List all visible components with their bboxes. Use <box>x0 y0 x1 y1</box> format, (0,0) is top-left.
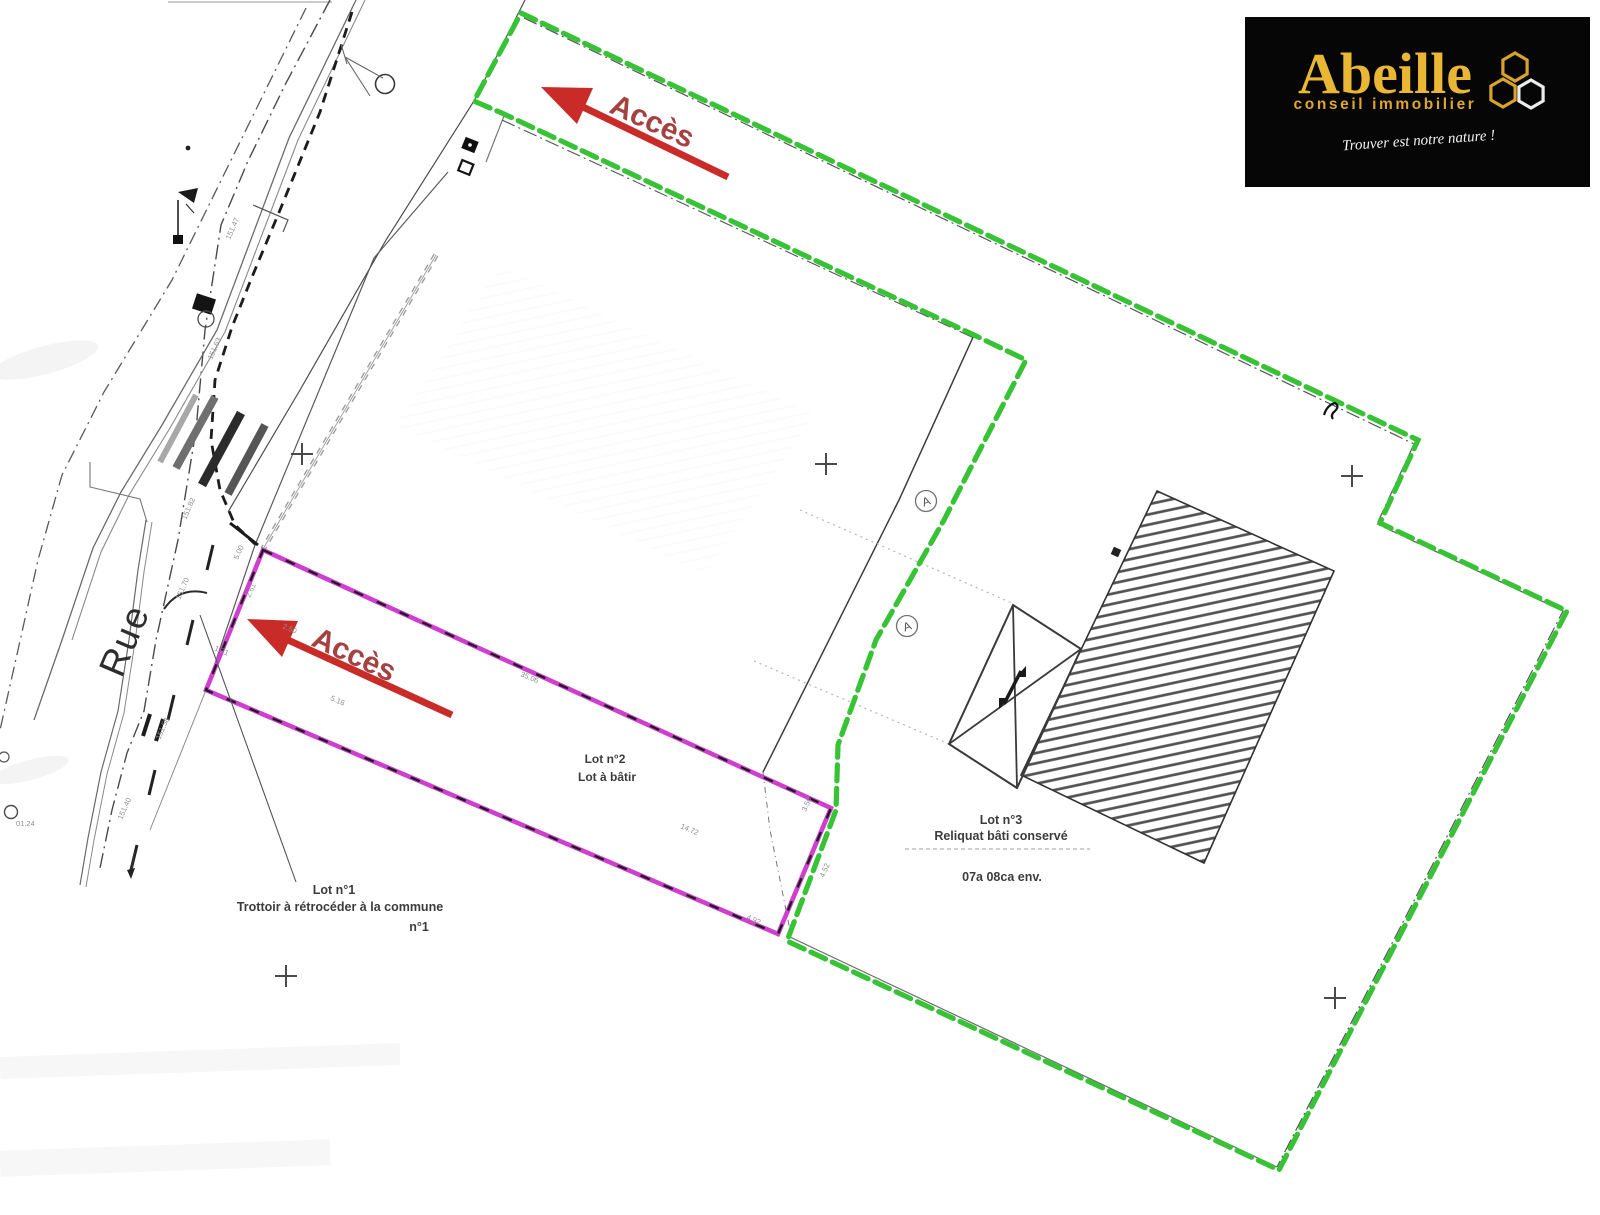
svg-text:Reliquat bâti conservé: Reliquat bâti conservé <box>934 829 1067 843</box>
svg-text:Lot n°1: Lot n°1 <box>313 883 356 897</box>
svg-text:Trottoir à rétrocéder à la com: Trottoir à rétrocéder à la commune <box>237 900 443 914</box>
svg-text:Lot à bâtir: Lot à bâtir <box>578 770 636 784</box>
svg-text:Lot n°3: Lot n°3 <box>980 813 1023 827</box>
svg-text:Lot n°2: Lot n°2 <box>585 752 626 766</box>
svg-text:01.24: 01.24 <box>16 819 35 828</box>
svg-text:07a 08ca env.: 07a 08ca env. <box>962 870 1042 884</box>
svg-text:n°1: n°1 <box>409 920 429 934</box>
svg-text:conseil immobilier: conseil immobilier <box>1294 96 1477 113</box>
